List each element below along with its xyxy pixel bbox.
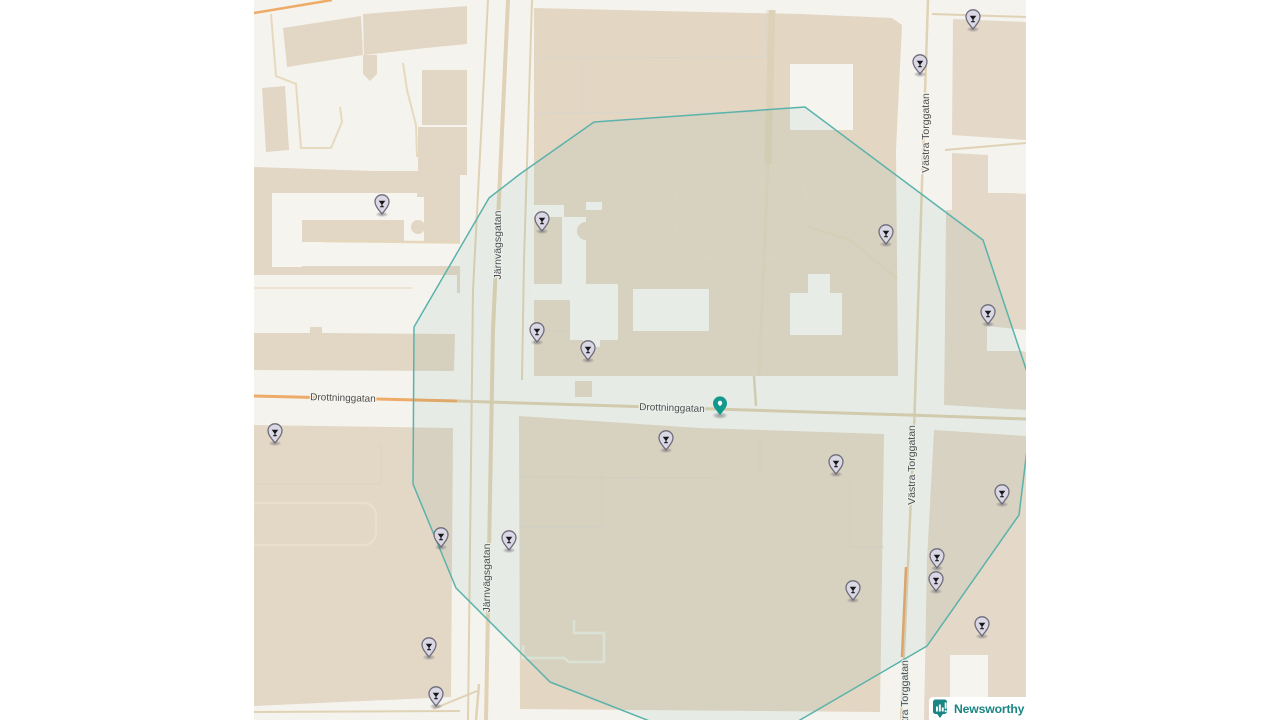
- svg-text:Västra Torggatan: Västra Torggatan: [899, 660, 911, 720]
- svg-text:Västra Torggatan: Västra Torggatan: [906, 425, 918, 505]
- svg-text:Järnvägsgatan: Järnvägsgatan: [481, 543, 493, 612]
- svg-text:Drottninggatan: Drottninggatan: [310, 392, 376, 405]
- svg-text:Newsworthy: Newsworthy: [954, 702, 1025, 716]
- svg-text:Järnvägsgatan: Järnvägsgatan: [492, 210, 504, 279]
- svg-text:Drottninggatan: Drottninggatan: [639, 402, 705, 415]
- svg-text:Västra Torggatan: Västra Torggatan: [920, 93, 932, 173]
